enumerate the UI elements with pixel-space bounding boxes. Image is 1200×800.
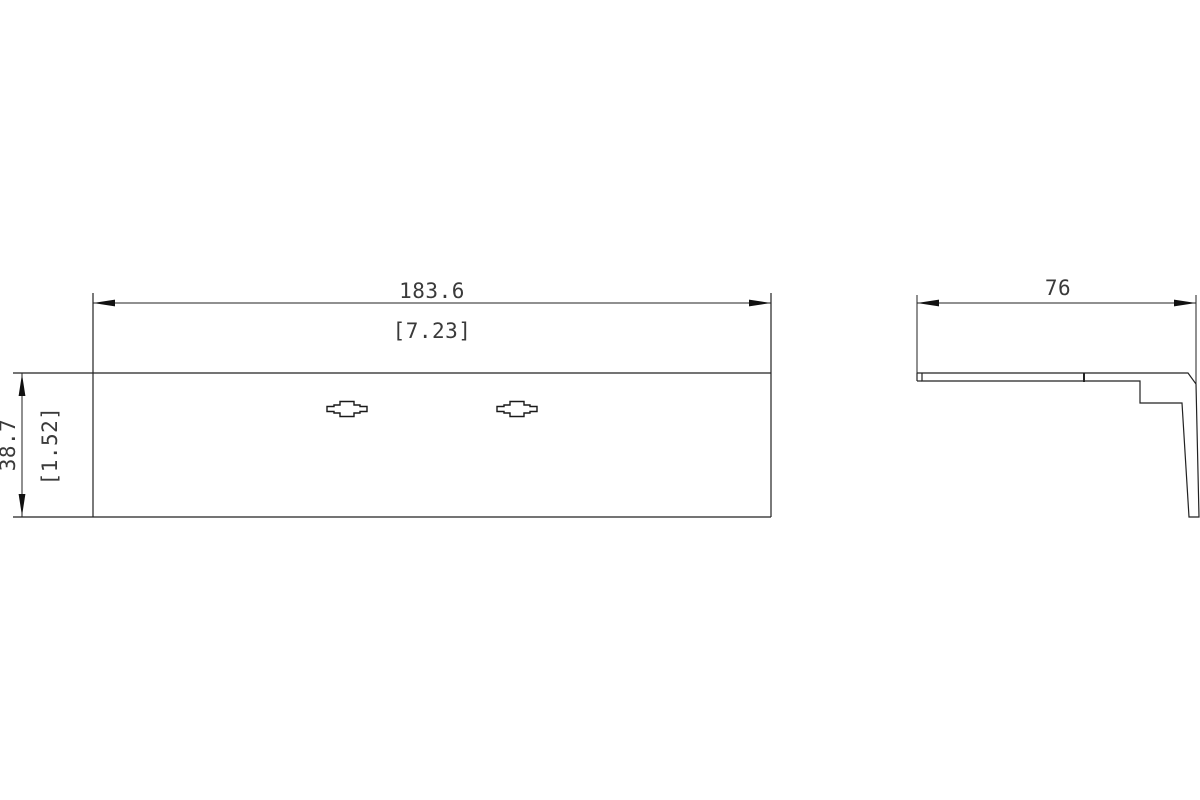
drawing-canvas: 183.6 [7.23] 38.7 [1.52] [0,0,1200,800]
arrow-right-icon [749,300,771,307]
front-width-dim-in-label: [7.23] [393,319,472,343]
front-width-dimension: 183.6 [7.23] [93,279,771,343]
front-height-dim-in-label: [1.52] [38,407,62,486]
slot-cutout-left [327,402,367,417]
side-depth-dim-label: 76 [1045,276,1071,300]
front-width-dim-mm-label: 183.6 [399,279,465,303]
front-height-dim-mm-label: 38.7 [0,419,20,472]
arrow-left-icon [917,300,939,307]
front-height-dimension: 38.7 [1.52] [0,373,62,517]
side-depth-dimension: 76 [917,276,1196,384]
arrow-right-icon [1174,300,1196,307]
slot-cutout-right [497,402,537,417]
side-view [917,373,1199,517]
arrow-up-icon [19,374,26,396]
arrow-left-icon [93,300,115,307]
arrow-down-icon [19,494,26,516]
side-profile-outline [917,373,1199,517]
technical-drawing: 183.6 [7.23] 38.7 [1.52] [0,0,1200,800]
